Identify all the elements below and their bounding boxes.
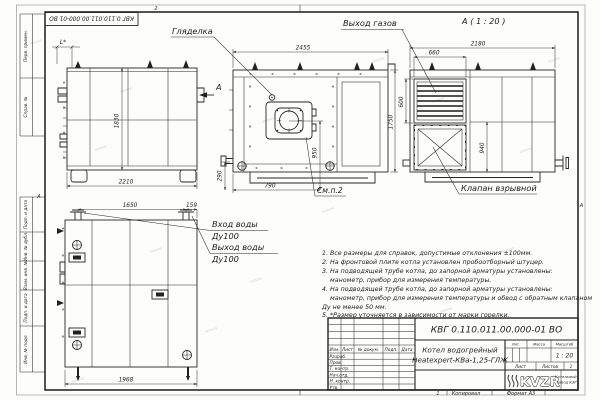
zone-top-label: 2 [154, 6, 157, 12]
tb-company-line2: завод КЗР [557, 381, 577, 385]
dim-l: L* [60, 40, 66, 46]
footer-copied: Копировал [452, 391, 481, 397]
top-stamp: КВГ 0.110.011.00.000-01 ВО [45, 13, 138, 26]
margin-label: Подп. и дата [23, 293, 29, 323]
footer-row: 1 Копировал Формат А3 [436, 391, 545, 397]
dim-1750: 1750 [389, 114, 395, 129]
dim-2210: 2210 [119, 180, 134, 186]
note-line: манометр, прибор для измерения температу… [330, 294, 592, 302]
label-gas-outlet: Выход газов [343, 18, 397, 28]
label-water-outlet-dn: Ду100 [211, 254, 239, 264]
dim-290: 290 [218, 170, 224, 181]
tb-designation: КВГ 0.110.011.00.000-01 ВО [431, 326, 562, 336]
kvzr-logo: KVZR Котельный завод КЗР [508, 374, 577, 389]
tb-sheet-label: Лист [514, 364, 526, 370]
tb-scale-value: 1 : 20 [556, 353, 573, 360]
tb-sheets-label: Листов [541, 364, 559, 370]
lifting-lugs [252, 62, 375, 70]
tb-col: № докум. [357, 347, 379, 353]
sheet-frame: 2 А А [17, 5, 586, 395]
label-water-outlet: Выход воды [212, 242, 265, 252]
view-rear: 1650 159 1968 Вход воды Ду100 Выход воды… [57, 203, 278, 387]
notes-block: 1. Все размеры для справок, допустимые о… [321, 250, 592, 319]
lifting-lugs [75, 60, 189, 68]
tb-mass-label: Масса [533, 343, 545, 347]
tb-row: Утв. [330, 385, 339, 391]
zone-right-label: А [579, 203, 584, 209]
dim-790: 790 [264, 184, 275, 190]
note-line: Ду не менее 50 мм. [321, 304, 387, 311]
title-block: Изм. Лист № докум. Подп. Дата Разраб. Пр… [328, 318, 578, 391]
margin-label: Инв. № подл. [23, 334, 29, 364]
label-explosion-valve: Клапан взрывной [461, 183, 537, 193]
note-line: 3. На подводящей трубе котла, до запорно… [322, 267, 553, 275]
dim-2455: 2455 [296, 46, 311, 52]
view-front: 2455 1750 950 790 290 Гляделка См.п.2 [171, 26, 398, 196]
footer-format: Формат А3 [507, 391, 535, 397]
section-title: А ( 1 : 20 ) [461, 16, 505, 26]
note-line: 2. На фронтовой плите котла установлен п… [322, 258, 544, 266]
top-stamp-text: КВГ 0.110.011.00.000-01 ВО [49, 15, 134, 21]
margin-boxes: Перв. примен. Справ. № Подп. и дата Инв.… [20, 14, 45, 372]
label-water-inlet-dn: Ду100 [211, 231, 239, 241]
margin-label: Инв. № дубл. [23, 232, 29, 261]
label-see-note: См.п.2 [317, 186, 343, 195]
tb-lit-label: Лит. [511, 343, 521, 347]
tb-row: Нач.отд. [330, 372, 349, 378]
note-line: манометр, прибор для измерения температу… [330, 276, 491, 284]
view-arrow-letter: А [215, 82, 222, 92]
note-line: 4. На подводящей трубе котла, до запорно… [322, 285, 553, 293]
label-peephole: Гляделка [172, 26, 213, 36]
tb-sheets-value: 1 [570, 364, 573, 370]
tb-col: Лист [341, 347, 353, 353]
tb-product-line1: Котел водогрейный [422, 346, 498, 355]
lifting-lugs [429, 62, 536, 70]
tb-product-line2: Heatexpert-КВа-1,25-ГЛЖ [412, 356, 508, 365]
view-side: L* 1830 2210 А [52, 40, 222, 189]
footer-zone: 1 [436, 391, 439, 397]
tb-row: Разраб. [330, 354, 347, 360]
dim-660: 660 [428, 51, 439, 57]
dim-950: 950 [313, 147, 319, 158]
tb-row: Т. контр. [330, 366, 350, 372]
view-section-a: А ( 1 : 20 ) 2180 660 600 940 Выход газо… [341, 16, 569, 194]
margin-label: Взам. инв. № [23, 260, 29, 290]
dim-2180: 2180 [471, 42, 486, 48]
tb-company-line1: Котельный [555, 375, 577, 379]
margin-label: Подп. и дата [23, 200, 29, 230]
dim-159: 159 [186, 203, 197, 209]
dim-1968: 1968 [119, 378, 134, 384]
dim-600: 600 [399, 96, 405, 107]
note-line: 1. Все размеры для справок, допустимые о… [322, 250, 532, 257]
dim-1830: 1830 [115, 113, 121, 128]
tb-col: Дата [400, 347, 412, 353]
margin-label: Справ. № [23, 96, 29, 117]
label-water-inlet: Вход воды [212, 219, 258, 229]
drawing-sheet: 2 А А КВГ 0.110.011.00.000-01 ВО Перв. п… [0, 0, 600, 400]
margin-label: Перв. примен. [23, 30, 29, 62]
tb-col: Изм. [329, 347, 339, 353]
tb-scale-label: Масштаб [556, 343, 574, 347]
dim-1650: 1650 [123, 203, 138, 209]
tb-row: Пров. [330, 360, 343, 366]
tb-row: Н. контр. [330, 379, 351, 385]
dim-940: 940 [480, 142, 486, 153]
tb-col: Подп. [384, 347, 397, 353]
